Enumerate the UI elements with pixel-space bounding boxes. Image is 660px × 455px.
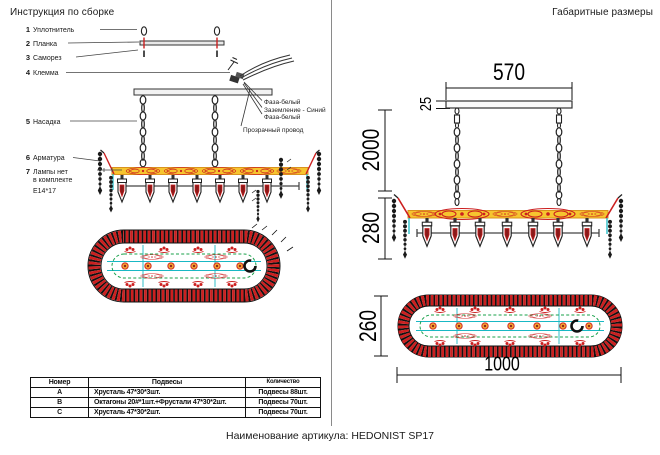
parts-list-item-3: 3 Саморез [18, 53, 62, 62]
table-row: A Хрусталь 47*30*3шт. Подвесы 88шт. [31, 388, 321, 398]
cell-quantity: Подвесы 70шт. [246, 398, 321, 408]
wire-label-phase-top: Фаза-белый [264, 99, 300, 106]
part-label: Саморез [33, 55, 62, 62]
right-chandelier-side-view [392, 101, 623, 259]
cell-row-letter: C [31, 408, 89, 418]
right-panel-title: Габаритные размеры [552, 7, 653, 18]
spec-sheet-page: { "document": { "left_title": "Инструкци… [0, 0, 660, 455]
dim-oval-height: 260 [355, 310, 383, 342]
cell-pendants: Хрусталь 47*30*3шт. [89, 388, 246, 398]
ground-symbol-icon [228, 58, 238, 71]
part-number: 1 [18, 25, 30, 34]
parts-list-item-7: 7 Лампы нет [18, 167, 68, 176]
part-label-line2: в комплекте [33, 177, 72, 184]
cell-quantity: Подвесы 70шт. [246, 408, 321, 418]
dim-body-height: 280 [358, 212, 386, 244]
parts-list-item-4: 4 Клемма [18, 68, 59, 77]
left-chandelier-side-view [97, 150, 321, 222]
parts-list-item-5: 5 Насадка [18, 117, 61, 126]
col-header-pendants: Подвесы [89, 378, 246, 388]
wire-label-ground: Заземление - Синий [264, 107, 326, 114]
article-name: Наименование артикула: HEDONIST SP17 [165, 430, 495, 442]
part-number: 6 [18, 153, 30, 162]
part-label: Лампы нет [33, 169, 68, 176]
cell-row-letter: B [31, 398, 89, 408]
part-label-line3: Е14*17 [33, 188, 56, 195]
parts-list-item-2: 2 Планка [18, 39, 57, 48]
part-number: 7 [18, 167, 30, 176]
dim-suspension-length: 2000 [358, 129, 386, 172]
mounting-bar-diagram [140, 27, 224, 57]
part-label: Арматура [33, 155, 65, 162]
cell-quantity: Подвесы 88шт. [246, 388, 321, 398]
part-number: 2 [18, 39, 30, 48]
parts-list-item-6: 6 Арматура [18, 153, 65, 162]
wire-label-phase-bottom: Фаза-белый [264, 114, 300, 121]
part-number: 5 [18, 117, 30, 126]
cell-pendants: Октагоны 20#*1шт.+Фрустали 47*30*2шт. [89, 398, 246, 408]
part-label: Клемма [33, 70, 59, 77]
wire-label-transparent: Прозрачный провод [243, 127, 303, 134]
dim-canopy-height: 25 [418, 97, 436, 111]
cell-pendants: Хрусталь 47*30*2шт. [89, 408, 246, 418]
table-row: C Хрусталь 47*30*2шт. Подвесы 70шт. [31, 408, 321, 418]
part-label: Планка [33, 41, 57, 48]
left-suspension-chains [140, 96, 218, 167]
table-row: B Октагоны 20#*1шт.+Фрустали 47*30*2шт. … [31, 398, 321, 408]
dim-oval-width: 1000 [484, 354, 520, 377]
table-header-row: Номер Подвесы Количество [31, 378, 321, 388]
col-header-number: Номер [31, 378, 89, 388]
left-chandelier-top-view [88, 224, 293, 302]
parts-list-item-1: 1 Уплотнитель [18, 25, 74, 34]
part-label: Уплотнитель [33, 27, 74, 34]
part-number: 4 [18, 68, 30, 77]
cell-row-letter: A [31, 388, 89, 398]
col-header-quantity: Количество [246, 378, 321, 388]
dim-canopy-width: 570 [493, 59, 525, 87]
part-label: Насадка [33, 119, 61, 126]
part-number: 3 [18, 53, 30, 62]
pendant-spec-table: Номер Подвесы Количество A Хрусталь 47*3… [30, 377, 321, 418]
left-panel-title: Инструкция по сборке [10, 7, 114, 18]
right-chandelier-top-view [398, 295, 622, 357]
